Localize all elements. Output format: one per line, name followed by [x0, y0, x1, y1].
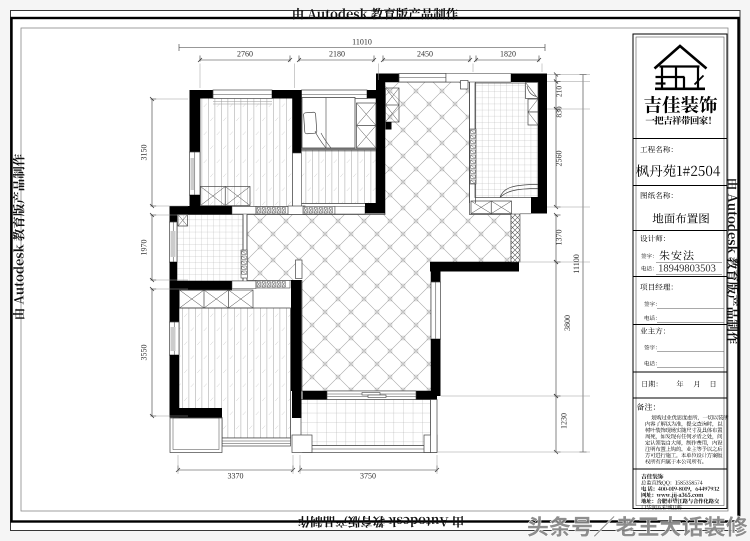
svg-text:1230: 1230 — [560, 413, 569, 429]
svg-text:3750: 3750 — [360, 472, 376, 481]
svg-text:2760: 2760 — [237, 50, 253, 59]
svg-text:3370: 3370 — [228, 472, 244, 481]
svg-text:1970: 1970 — [140, 240, 149, 256]
svg-text:11100: 11100 — [572, 254, 581, 273]
svg-text:11010: 11010 — [352, 38, 372, 47]
svg-text:2560: 2560 — [555, 151, 564, 167]
svg-text:3800: 3800 — [563, 315, 572, 331]
svg-text:830: 830 — [555, 106, 564, 118]
svg-text:3550: 3550 — [140, 345, 149, 361]
svg-text:210: 210 — [555, 86, 564, 98]
svg-text:18949803503: 18949803503 — [658, 264, 716, 275]
svg-text:3150: 3150 — [140, 145, 149, 161]
svg-text:1820: 1820 — [500, 50, 516, 59]
svg-text:1370: 1370 — [555, 230, 564, 246]
svg-text:2450: 2450 — [417, 50, 433, 59]
svg-text:2180: 2180 — [329, 50, 345, 59]
